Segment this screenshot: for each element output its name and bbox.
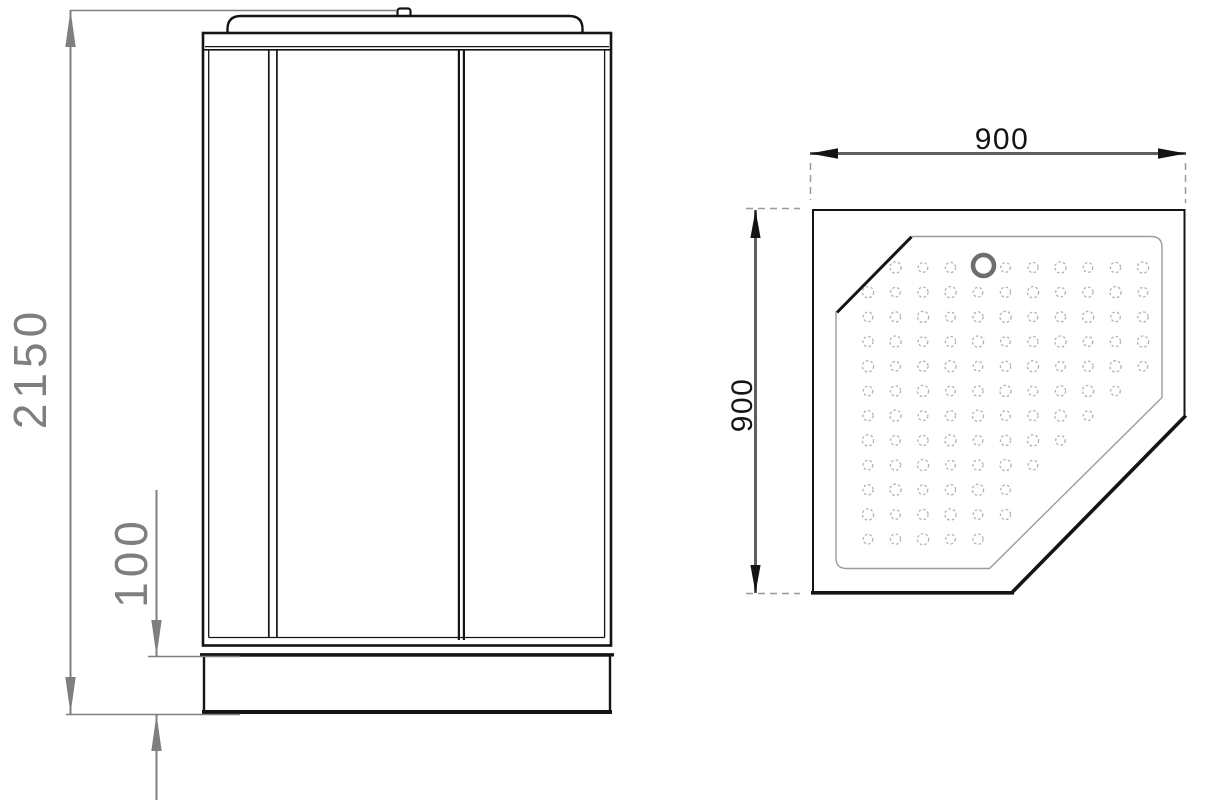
height-dim-label: 2150 <box>4 307 56 429</box>
tray-fill <box>813 210 1185 592</box>
front-view: 2150 100 <box>4 9 614 800</box>
width-dim-label: 900 <box>975 123 1030 156</box>
shower-cabin-drawing: 2150 100 <box>0 0 1213 800</box>
base-panel <box>204 656 610 713</box>
drawing-canvas: 2150 100 <box>0 0 1213 800</box>
width-dimension: 900 <box>810 123 1186 203</box>
arrow-up-icon <box>151 714 161 751</box>
arrow-down-icon <box>750 565 760 593</box>
arrow-up-icon <box>750 210 760 238</box>
roof-dome <box>228 16 583 34</box>
cabin-frame <box>203 33 611 646</box>
depth-dim-label: 900 <box>726 378 759 433</box>
base-height-dim-label: 100 <box>105 516 157 608</box>
depth-dimension: 900 <box>726 209 800 594</box>
arrow-left-icon <box>810 148 838 159</box>
arrow-down-icon <box>65 677 75 714</box>
arrow-down-icon <box>151 620 161 656</box>
top-plan-view: 900 900 <box>726 123 1186 594</box>
arrow-up-icon <box>65 10 75 47</box>
arrow-right-icon <box>1158 148 1186 159</box>
